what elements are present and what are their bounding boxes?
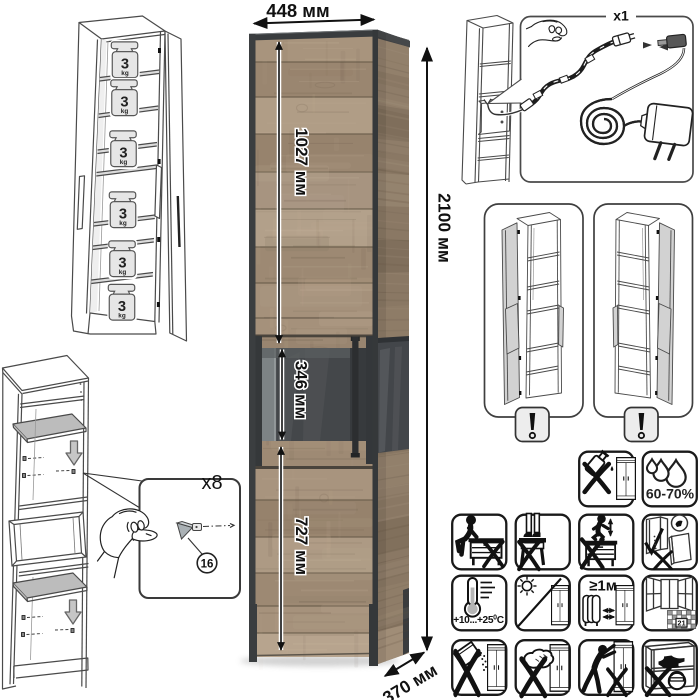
svg-text:≥1м: ≥1м <box>589 578 617 595</box>
svg-text:60-70%: 60-70% <box>646 486 695 502</box>
svg-text:x8: x8 <box>201 472 222 494</box>
svg-text:21: 21 <box>677 618 685 627</box>
svg-text:346 мм: 346 мм <box>292 361 311 419</box>
svg-text:727 мм: 727 мм <box>292 517 311 575</box>
svg-text:448 мм: 448 мм <box>266 0 329 21</box>
svg-text:16: 16 <box>201 559 214 571</box>
svg-text:x1: x1 <box>613 8 629 24</box>
svg-text:1027 мм: 1027 мм <box>292 128 311 196</box>
svg-text:+10...+250С: +10...+250С <box>453 615 504 627</box>
svg-text:2100 мм: 2100 мм <box>435 193 455 263</box>
